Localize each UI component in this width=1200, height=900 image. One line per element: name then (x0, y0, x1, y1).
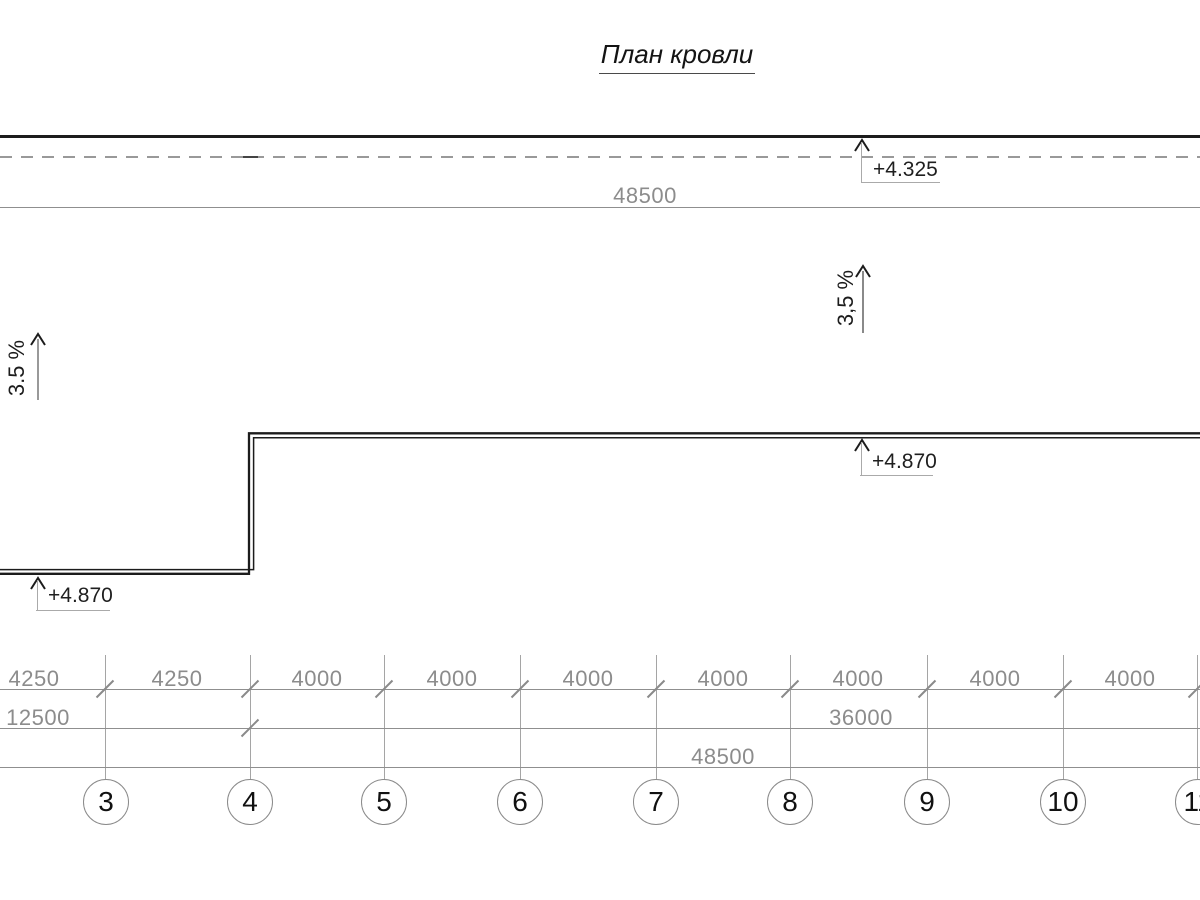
grid-bubble: 3 (83, 779, 129, 825)
axis-extension-line (105, 655, 106, 779)
dim-label: 4000 (427, 668, 478, 690)
dim-label: 4000 (833, 668, 884, 690)
dim-label: 4000 (698, 668, 749, 690)
grid-bubble-label: 6 (512, 788, 528, 816)
axis-extension-line (384, 655, 385, 779)
dim-label: 4000 (1105, 668, 1156, 690)
grid-bubble-label: 7 (648, 788, 664, 816)
grid-bubble: 6 (497, 779, 543, 825)
grid-bubble-label: 8 (782, 788, 798, 816)
axis-extension-line (1063, 655, 1064, 779)
roof-step-outline (0, 0, 1200, 900)
arrow-up-icon (30, 577, 46, 590)
dim-label: 4250 (152, 668, 203, 690)
grid-bubble-label: 10 (1047, 788, 1078, 816)
elevation-leader-line (37, 580, 38, 610)
elevation-leader-shelf (860, 475, 933, 476)
dim-label: 12500 (6, 707, 70, 729)
axis-extension-line (790, 655, 791, 779)
axis-extension-line (250, 655, 251, 779)
dim-line-row2 (0, 728, 1200, 729)
grid-bubble-label: 11 (1183, 788, 1200, 816)
axis-extension-line (927, 655, 928, 779)
roof-elevation-label-right: +4.870 (872, 451, 937, 472)
dim-label: 48500 (691, 746, 755, 768)
grid-bubble: 7 (633, 779, 679, 825)
roof-plan-drawing: План кровли 48500 +4.325 3,5 % 3.5 % +4.… (0, 0, 1200, 900)
grid-bubble: 10 (1040, 779, 1086, 825)
grid-bubble-label: 4 (242, 788, 258, 816)
arrow-up-icon (854, 439, 870, 452)
grid-bubble-label: 9 (919, 788, 935, 816)
axis-extension-line (520, 655, 521, 779)
roof-elevation-label-left: +4.870 (48, 585, 113, 606)
dim-label: 4250 (9, 668, 60, 690)
dim-label: 4000 (970, 668, 1021, 690)
dim-label: 4000 (292, 668, 343, 690)
grid-bubble: 5 (361, 779, 407, 825)
dim-label: 36000 (829, 707, 893, 729)
axis-extension-line (656, 655, 657, 779)
dim-line-row3 (0, 767, 1200, 768)
elevation-leader-line (861, 442, 862, 475)
axis-extension-line (1197, 655, 1198, 779)
grid-bubble-label: 5 (376, 788, 392, 816)
grid-bubble: 8 (767, 779, 813, 825)
grid-bubble: 4 (227, 779, 273, 825)
grid-bubble-label: 3 (98, 788, 114, 816)
grid-bubble: 9 (904, 779, 950, 825)
elevation-leader-shelf (36, 610, 110, 611)
dim-label: 4000 (563, 668, 614, 690)
